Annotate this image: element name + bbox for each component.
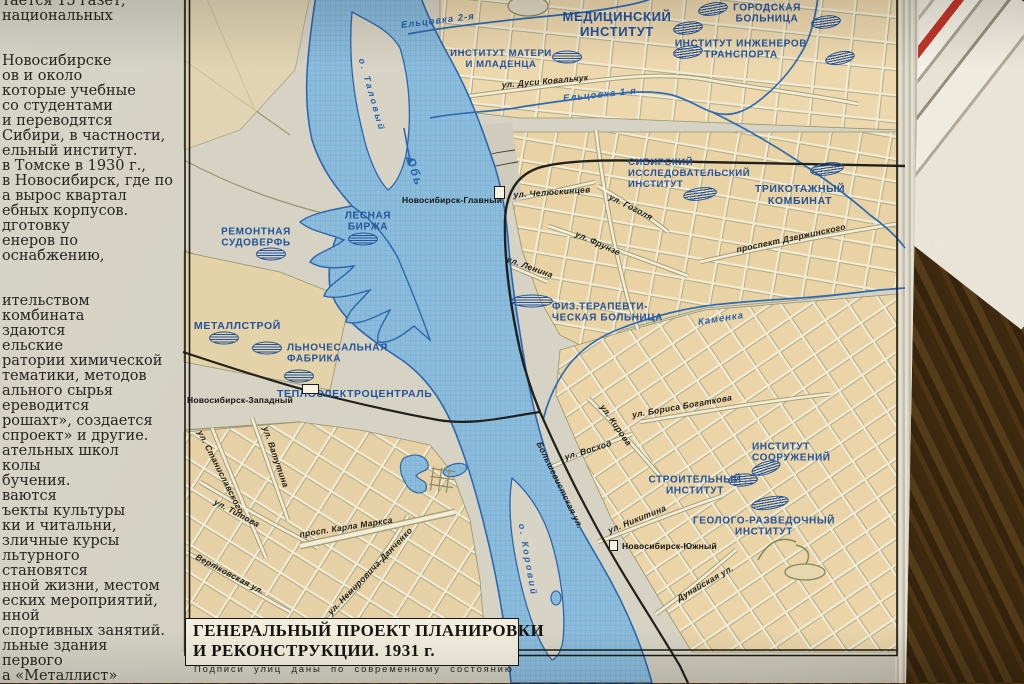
industry-symbol [209, 332, 239, 345]
industry-symbol [809, 160, 844, 178]
water-label: Ельцовка 1-я [563, 86, 638, 105]
institution-label: ФИЗ.ТЕРАПЕВТИ-ЧЕСКАЯ БОЛЬНИЦА [552, 302, 663, 325]
street-label: ул. Ленина [506, 254, 555, 280]
industry-symbol [511, 295, 553, 308]
street-label: Дунайская ул. [675, 563, 735, 603]
industry-symbol [824, 49, 856, 68]
station-label: Новосибирск-Южный [622, 541, 717, 551]
industry-symbol [252, 342, 282, 355]
industry-symbol [284, 370, 314, 383]
institution-label: ИНСТИТУТ МАТЕРИИ МЛАДЕНЦА [450, 49, 552, 71]
institution-label: СИБИРСКИЙИССЛЕДОВАТЕЛЬСКИЙИНСТИТУТ [628, 158, 750, 190]
street-label: ул. Никитина [606, 503, 667, 535]
street-label: ул. Бориса Богаткова [631, 392, 733, 419]
map-labels: МЕДИЦИНСКИЙИНСТИТУТГОРОДСКАЯБОЛЬНИЦАИНСТ… [0, 0, 1024, 683]
industry-symbol [672, 19, 704, 36]
institution-label: МЕТАЛЛСТРОЙ [194, 321, 281, 333]
street-label: ул. Челюскинцев [513, 184, 591, 199]
street-label: ул. Фрунзе [574, 229, 622, 258]
institution-label: ЛЕСНАЯБИРЖА [345, 211, 391, 234]
industry-symbol [256, 248, 286, 261]
water-label: Каменка [697, 310, 745, 328]
water-label: Обь [404, 156, 427, 189]
water-label: о. Коровий [517, 523, 540, 597]
street-label: Вертковская ул. [194, 552, 266, 597]
industry-symbol [810, 13, 842, 30]
station-symbol [609, 540, 618, 551]
institution-label: РЕМОНТНАЯСУДОВЕРФЬ [221, 227, 291, 250]
station-symbol [302, 384, 319, 394]
water-label: о. Таловый [357, 57, 387, 133]
industry-symbol [697, 0, 729, 18]
station-label: Новосибирск-Западный [187, 395, 293, 405]
industry-symbol [348, 233, 378, 246]
water-label: Ельцовка 2-я [401, 11, 476, 31]
street-label: ул. Гоголя [608, 192, 655, 222]
institution-label: СТРОИТЕЛЬНЫЙИНСТИТУТ [649, 475, 742, 498]
street-label: ул. Дуси Ковальчук [501, 72, 588, 90]
institution-label: ЛЬНОЧЕСАЛЬНАЯФАБРИКА [287, 343, 388, 366]
map-title-line2: И РЕКОНСТРУКЦИИ. 1931 г. [193, 641, 511, 661]
street-label: ул. Немировича-Данченко [326, 525, 415, 616]
station-symbol [494, 186, 505, 199]
industry-symbol [750, 493, 790, 512]
station-label: Новосибирск-Главный [402, 195, 502, 205]
street-label: ул. Восход [563, 438, 612, 462]
institution-label: ТЕПЛОЭЛЕКТРОЦЕНТРАЛЬ [277, 389, 432, 401]
street-label: просп. Карла Маркса [299, 515, 394, 540]
map-title-line1: ГЕНЕРАЛЬНЫЙ ПРОЕКТ ПЛАНИРОВКИ [193, 621, 511, 641]
map-title-box: ГЕНЕРАЛЬНЫЙ ПРОЕКТ ПЛАНИРОВКИ И РЕКОНСТР… [185, 618, 519, 666]
institution-label: МЕДИЦИНСКИЙИНСТИТУТ [563, 10, 672, 40]
book-page: тается 15 газет,национальныхНовосибирске… [0, 0, 922, 683]
institution-label: ГЕОЛОГО-РАЗВЕДОЧНЫЙИНСТИТУТ [693, 516, 835, 539]
street-label: проспект Дзержинского [735, 222, 846, 255]
institution-label: ТРИКОТАЖНЫЙКОМБИНАТ [755, 184, 845, 208]
map-caption: Подписи улиц даны по современному состоя… [194, 664, 514, 675]
industry-symbol [552, 51, 582, 64]
institution-label: ГОРОДСКАЯБОЛЬНИЦА [733, 3, 801, 26]
street-label: ул. Ватутина [261, 425, 291, 489]
